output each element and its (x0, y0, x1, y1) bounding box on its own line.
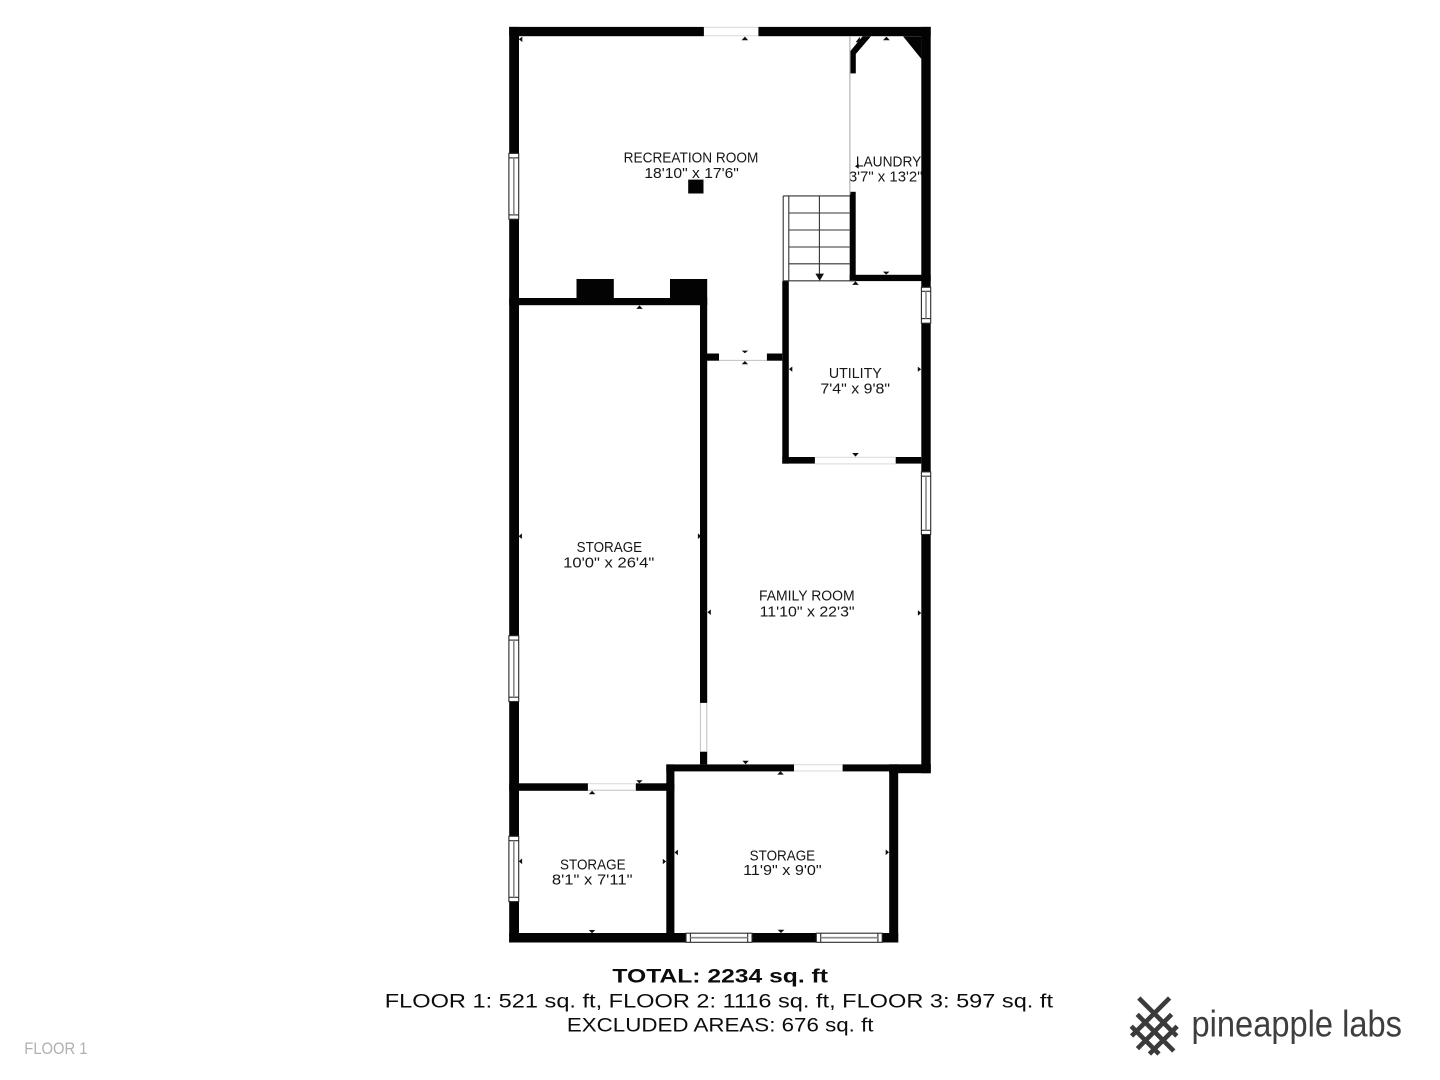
svg-text:18'10" x 17'6": 18'10" x 17'6" (644, 166, 739, 182)
svg-text:EXCLUDED AREAS: 676 sq. ft: EXCLUDED AREAS: 676 sq. ft (567, 1015, 874, 1036)
svg-text:FLOOR 1: FLOOR 1 (24, 1040, 87, 1058)
svg-text:STORAGE: STORAGE (560, 858, 626, 874)
svg-text:8'1" x 7'11": 8'1" x 7'11" (552, 873, 633, 889)
svg-text:11'10" x 22'3": 11'10" x 22'3" (760, 604, 855, 620)
svg-text:LAUNDRY: LAUNDRY (856, 155, 922, 171)
svg-text:11'9" x 9'0": 11'9" x 9'0" (743, 863, 822, 879)
svg-text:FAMILY ROOM: FAMILY ROOM (759, 589, 855, 605)
svg-text:pineapple labs: pineapple labs (1192, 1003, 1403, 1045)
svg-text:FLOOR 1: 521 sq. ft, FLOOR 2:: FLOOR 1: 521 sq. ft, FLOOR 2: 1116 sq. f… (385, 991, 1054, 1012)
svg-text:3'7" x 13'2": 3'7" x 13'2" (849, 170, 923, 186)
svg-text:STORAGE: STORAGE (750, 848, 816, 864)
svg-text:UTILITY: UTILITY (829, 366, 882, 382)
svg-text:10'0" x 26'4": 10'0" x 26'4" (563, 555, 654, 571)
svg-text:STORAGE: STORAGE (577, 540, 643, 556)
svg-text:7'4" x 9'8": 7'4" x 9'8" (820, 382, 890, 398)
svg-text:TOTAL: 2234 sq. ft: TOTAL: 2234 sq. ft (612, 967, 828, 988)
svg-text:RECREATION ROOM: RECREATION ROOM (624, 151, 759, 167)
